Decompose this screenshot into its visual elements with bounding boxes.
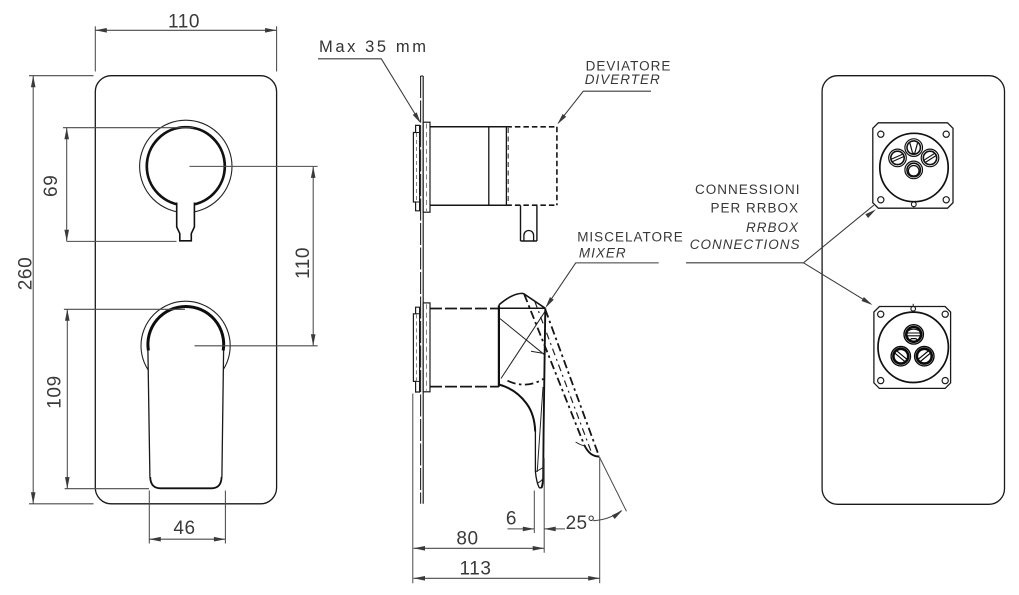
- svg-text:260: 260: [16, 257, 37, 291]
- svg-text:25°: 25°: [566, 513, 596, 534]
- svg-text:80: 80: [456, 528, 478, 549]
- svg-text:PER RRBOX: PER RRBOX: [710, 200, 799, 215]
- svg-text:DIVERTER: DIVERTER: [585, 72, 661, 87]
- svg-text:MIXER: MIXER: [579, 245, 627, 260]
- svg-text:Max 35 mm: Max 35 mm: [319, 38, 429, 56]
- svg-text:RRBOX: RRBOX: [746, 220, 799, 235]
- svg-text:110: 110: [293, 247, 314, 279]
- svg-text:MISCELATORE: MISCELATORE: [577, 229, 684, 244]
- svg-text:DEVIATORE: DEVIATORE: [586, 58, 672, 73]
- svg-text:69: 69: [41, 175, 62, 197]
- svg-text:CONNECTIONS: CONNECTIONS: [690, 237, 801, 252]
- svg-text:6: 6: [506, 508, 517, 529]
- svg-text:CONNESSIONI: CONNESSIONI: [695, 182, 801, 197]
- svg-text:113: 113: [459, 558, 491, 579]
- svg-text:46: 46: [173, 518, 195, 539]
- svg-text:109: 109: [45, 375, 66, 409]
- svg-text:110: 110: [168, 12, 200, 33]
